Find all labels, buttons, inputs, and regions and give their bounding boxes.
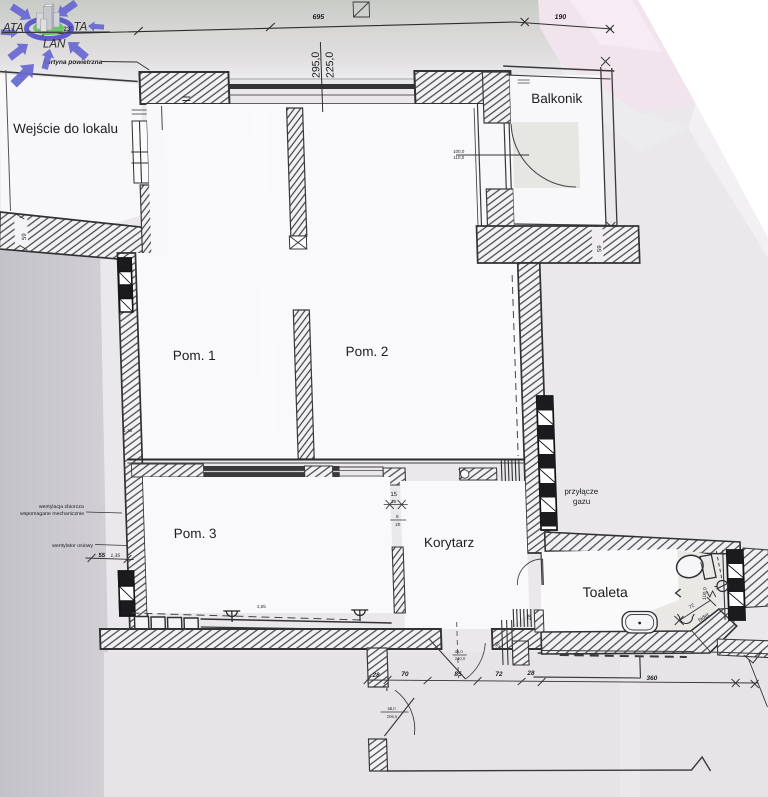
svg-text:Pom. 3: Pom. 3 (173, 526, 216, 541)
svg-text:Pom. 2: Pom. 2 (345, 344, 388, 359)
svg-text:ATA: ATA (2, 23, 24, 35)
svg-text:28: 28 (526, 614, 532, 620)
svg-text:190: 190 (554, 14, 566, 21)
svg-text:55: 55 (98, 553, 106, 559)
svg-text:1,35: 1,35 (123, 428, 132, 433)
svg-text:20: 20 (395, 522, 401, 527)
svg-text:59: 59 (597, 245, 603, 252)
svg-text:15: 15 (390, 492, 398, 498)
svg-text:Balkonik: Balkonik (531, 91, 583, 106)
svg-text:Korytarz: Korytarz (424, 535, 475, 550)
svg-text:gazu: gazu (573, 497, 591, 506)
svg-text:28: 28 (495, 642, 501, 648)
svg-text:wentylacja zbiorcza: wentylacja zbiorcza (39, 504, 84, 510)
svg-text:72: 72 (495, 671, 503, 678)
svg-text:TA: TA (74, 22, 88, 34)
svg-text:wentylator osiowy: wentylator osiowy (52, 543, 94, 549)
svg-text:Wejście do lokalu: Wejście do lokalu (13, 121, 118, 136)
svg-text:100,0: 100,0 (453, 149, 465, 154)
svg-text:1,35: 1,35 (110, 553, 120, 559)
svg-text:45,0: 45,0 (455, 649, 464, 654)
svg-text:23°: 23° (64, 27, 74, 33)
svg-text:295,0: 295,0 (310, 52, 323, 78)
svg-text:kurtyna powietrzna: kurtyna powietrzna (43, 59, 103, 66)
svg-text:85: 85 (454, 671, 462, 678)
svg-text:28: 28 (371, 672, 380, 679)
svg-text:przyłącze: przyłącze (564, 487, 599, 496)
svg-text:695: 695 (312, 14, 324, 21)
svg-text:2,85: 2,85 (257, 604, 266, 609)
svg-text:Toaleta: Toaleta (582, 584, 628, 600)
svg-text:360: 360 (646, 675, 657, 682)
svg-text:Pom. 1: Pom. 1 (173, 348, 216, 363)
svg-text:LAN: LAN (43, 39, 66, 51)
svg-text:225,0: 225,0 (324, 52, 337, 78)
svg-text:59: 59 (22, 233, 28, 240)
svg-text:206,0: 206,0 (387, 714, 398, 719)
svg-text:wspomagane mechanicznie: wspomagane mechanicznie (20, 511, 84, 517)
svg-text:70: 70 (401, 671, 409, 678)
svg-text:240,0: 240,0 (455, 656, 466, 661)
svg-text:28: 28 (526, 670, 535, 677)
svg-text:48,0: 48,0 (387, 706, 396, 711)
svg-text:110,0: 110,0 (453, 155, 465, 160)
